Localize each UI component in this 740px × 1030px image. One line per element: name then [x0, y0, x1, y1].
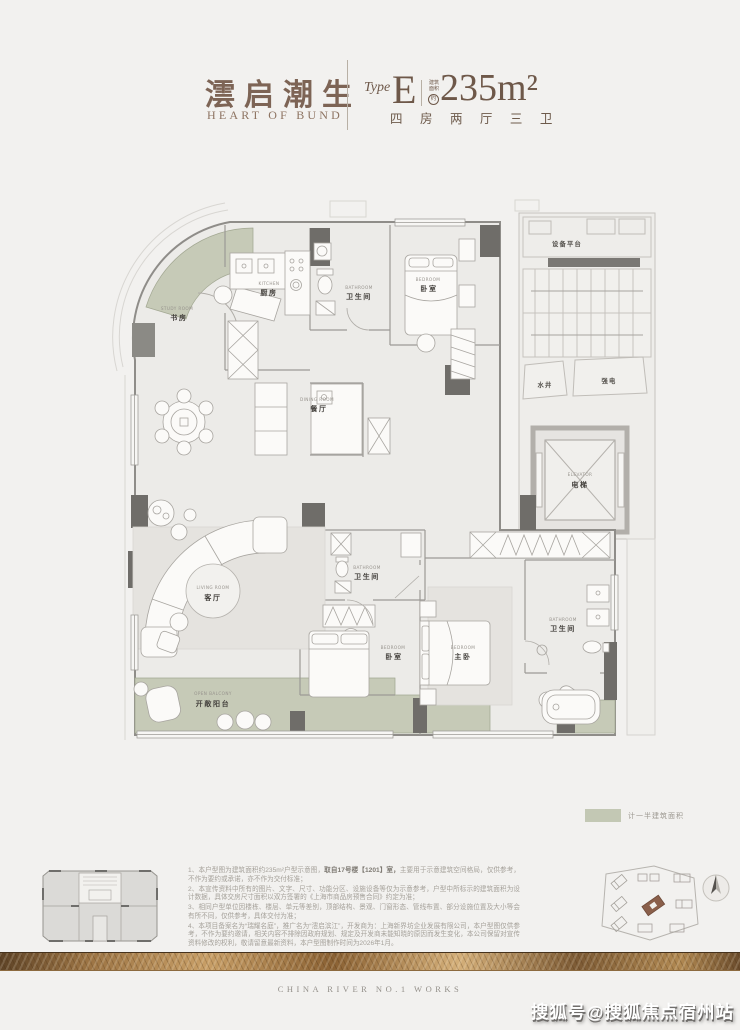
unit-type-label: Type: [364, 80, 390, 96]
legend-label: 计一半建筑面积: [628, 811, 684, 821]
elevator-label-en: ELEVATOR: [568, 472, 593, 477]
site-highlight-building: [642, 895, 665, 915]
power-shaft-label: 强电: [602, 376, 617, 385]
balcony-label-en: OPEN BALCONY: [194, 691, 232, 696]
works-label: CHINA RIVER NO.1 WORKS: [0, 984, 740, 994]
note-item-2: 2、本宣传资料中所有的图片、文字、尺寸、功能分区、设施设备等仅为示意参考，户型中…: [188, 886, 520, 904]
wall-block: [548, 258, 640, 267]
study-label-cn: 书房: [170, 313, 187, 322]
kitchen-label-cn: 厨房: [260, 288, 277, 297]
bedroom-top-label-en: BEDROOM: [416, 277, 441, 282]
master-label-en: BEDROOM: [451, 645, 476, 650]
gold-band: [0, 952, 740, 971]
area-prefix-line2: 面积: [429, 86, 439, 92]
floor-plan-svg: 设备平台 水井 强电: [95, 195, 660, 770]
note-item-1: 1、本户型图为建筑面积约235m²户型示意图，取自17号楼【1201】室，主要用…: [188, 867, 520, 885]
note-item-3: 3、相同户型单位因楼栋、楼层、单元等差别，顶部结构、景观、门窗形态、管线布置、部…: [188, 904, 520, 922]
bedroom2-label-en: BEDROOM: [381, 645, 406, 650]
header-divider-small: [421, 80, 422, 106]
kitchen-label-en: KITCHEN: [259, 281, 280, 286]
elevator: ELEVATOR 电梯: [533, 428, 627, 532]
water-shaft-label: 水井: [538, 380, 553, 389]
bath-top-label-cn: 卫生间: [346, 292, 372, 301]
watermark: 搜狐号@搜狐焦点宿州站: [531, 999, 734, 1024]
bath-top-label-en: BATHROOM: [345, 285, 372, 290]
area-approx-badge: 约: [428, 94, 439, 105]
site-plan: [592, 860, 732, 953]
bath-mid-label-en: BATHROOM: [353, 565, 380, 570]
balcony-label-cn: 开敞阳台: [196, 699, 230, 708]
bedroom-top-label-cn: 卧室: [420, 284, 437, 293]
header-divider: [347, 60, 348, 130]
layout-spec: 四 房 两 厅 三 卫: [390, 108, 559, 127]
key-plan: [35, 866, 165, 951]
shafts: [523, 357, 647, 399]
area-value: 235m²: [440, 66, 538, 110]
bedroom2-label-cn: 卧室: [385, 652, 402, 661]
legend-swatch: [585, 809, 621, 822]
unit-type-letter: E: [392, 66, 416, 113]
note-item-1-source: 取自17号楼【1201】室，: [324, 867, 400, 874]
living-label-en: LIVING ROOM: [197, 585, 230, 590]
compass-icon: [703, 875, 729, 901]
brand-title-en: HEART OF BUND: [207, 108, 367, 123]
elevator-label-cn: 电梯: [571, 480, 588, 489]
dining-label-en: DINING ROOM: [300, 397, 334, 402]
master-label-cn: 主卧: [454, 652, 471, 661]
bath-mid-label-cn: 卫生间: [354, 572, 380, 581]
note-item-4: 4、本项目备案名为“瑞耀名庭”，推广名为“澐启滨江”，开发商为：上海新界坊企业发…: [188, 923, 520, 949]
disclaimer-notes: 1、本户型图为建筑面积约235m²户型示意图，取自17号楼【1201】室，主要用…: [188, 867, 520, 950]
bath-master-label-en: BATHROOM: [549, 617, 576, 622]
study-label-en: STUDY ROOM: [161, 306, 193, 311]
equipment-platform-label: 设备平台: [552, 239, 582, 248]
bath-master-label-cn: 卫生间: [550, 624, 576, 633]
area-prefix: 建筑 面积: [427, 80, 441, 92]
living-label-cn: 客厅: [203, 593, 221, 602]
stairs: [523, 269, 651, 357]
dining-label-cn: 餐厅: [309, 404, 327, 413]
floor-plan: 设备平台 水井 强电: [95, 195, 660, 770]
legend-half-area: 计一半建筑面积: [585, 809, 684, 822]
